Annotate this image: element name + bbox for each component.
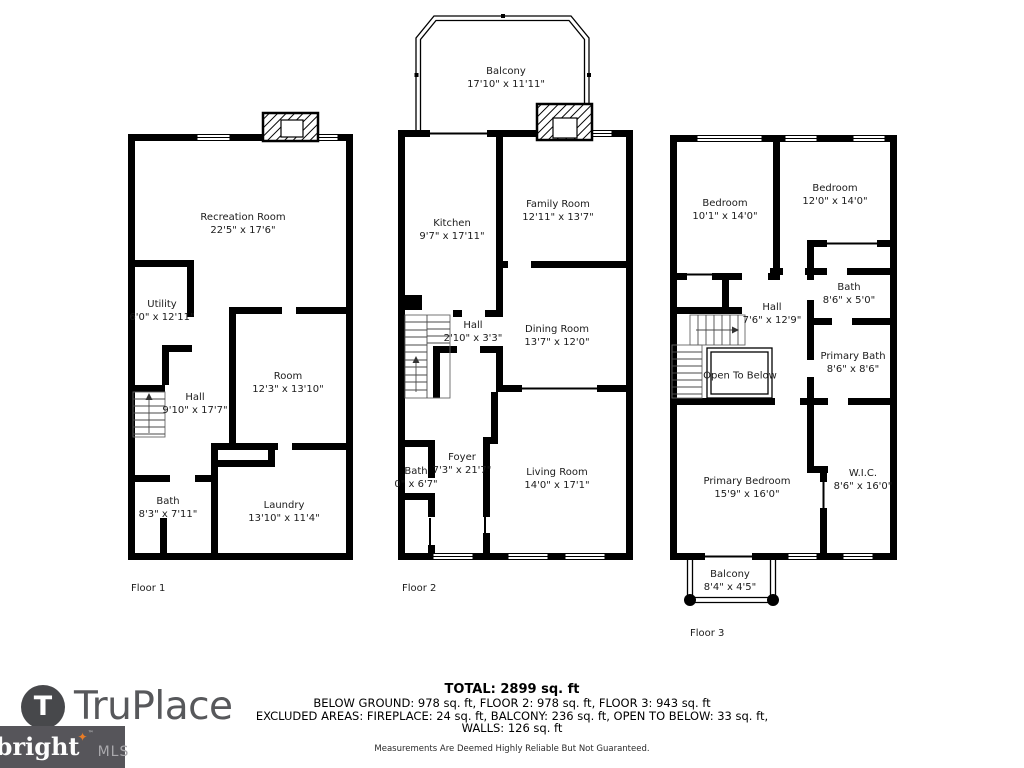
fireplace-symbol [537,104,592,140]
room-dims: 12'0" x 14'0" [802,195,867,208]
floor-2-walls [398,130,633,560]
room-name: Room [252,370,324,383]
window-symbol [785,136,817,142]
window-symbol [318,135,338,141]
room-label-hall-f3: Hall 7'6" x 12'9" [743,301,802,327]
room-name: Living Room [524,466,589,479]
floorplan-page: Recreation Room 22'5" x 17'6" Utility 6'… [0,0,1024,768]
window-symbol [853,136,885,142]
room-dims: 6'0" x 12'11" [129,311,194,324]
room-label-laundry: Laundry 13'10" x 11'4" [248,499,320,525]
room-dims: 15'9" x 16'0" [703,488,790,501]
window-symbol [197,135,230,141]
window-symbol [592,131,612,137]
room-dims: 12'11" x 13'7" [522,211,594,224]
room-name: Primary Bath [820,350,885,363]
room-name: Family Room [522,198,594,211]
room-name: Foyer [433,451,492,464]
room-dims: 8'4" x 4'5" [704,581,756,594]
room-name: Bedroom [692,197,757,210]
room-dims: 14'0" x 17'1" [524,479,589,492]
room-dims: 22'5" x 17'6" [200,224,285,237]
room-label-recreation-room: Recreation Room 22'5" x 17'6" [200,211,285,237]
window-symbol [433,554,473,560]
room-label-hall-f2: Hall 2'10" x 3'3" [444,319,503,345]
room-dims: 10'1" x 14'0" [692,210,757,223]
room-dims: 17'10" x 11'11" [467,78,545,91]
fireplace-symbol [263,113,318,141]
room-name: Utility [129,298,194,311]
room-label-bedroom-2: Bedroom 12'0" x 14'0" [802,182,867,208]
room-name: Hall [162,391,227,404]
truplace-pin-icon: T [21,685,65,729]
staircase-symbol [133,392,165,437]
room-dims: 7'3" x 21'7" [433,464,492,477]
room-name: Balcony [467,65,545,78]
room-label-living-room: Living Room 14'0" x 17'1" [524,466,589,492]
room-label-hall-f1: Hall 9'10" x 17'7" [162,391,227,417]
room-dims: 13'7" x 12'0" [524,336,589,349]
room-label-primary-bedroom: Primary Bedroom 15'9" x 16'0" [703,475,790,501]
room-dims: 0" x 6'7" [394,478,437,491]
truplace-logo: T TruPlace [21,684,233,729]
room-dims: 8'6" x 16'0" [834,480,893,493]
room-label-bath-f2: Bath 0" x 6'7" [394,465,437,491]
bright-mls-logo: bright ✦ ™ MLS [0,726,125,768]
window-symbol [565,554,605,560]
room-label-balcony-f3: Balcony 8'4" x 4'5" [704,568,756,594]
truplace-wordmark: TruPlace [74,684,233,729]
room-dims: 2'10" x 3'3" [444,332,503,345]
room-label-bath-f3: Bath 8'6" x 5'0" [823,281,875,307]
room-name: Hall [444,319,503,332]
room-label-wic: W.I.C. 8'6" x 16'0" [834,467,893,493]
room-name: Bath [394,465,437,478]
room-label-bedroom-1: Bedroom 10'1" x 14'0" [692,197,757,223]
room-name: Recreation Room [200,211,285,224]
floorplan-drawing [0,0,1024,768]
room-name: Laundry [248,499,320,512]
room-dims: 9'10" x 17'7" [162,404,227,417]
room-dims: 7'6" x 12'9" [743,314,802,327]
room-label-primary-bath: Primary Bath 8'6" x 8'6" [820,350,885,376]
room-dims: 9'7" x 17'11" [419,230,484,243]
room-label-dining-room: Dining Room 13'7" x 12'0" [524,323,589,349]
staircase-symbol [672,315,745,398]
bright-wordmark: bright [0,735,80,759]
room-dims: 8'6" x 8'6" [820,363,885,376]
room-name: Dining Room [524,323,589,336]
floor-3-label: Floor 3 [690,628,724,639]
room-name: Balcony [704,568,756,581]
room-name: Hall [743,301,802,314]
room-label-room: Room 12'3" x 13'10" [252,370,324,396]
disclaimer-text: Measurements Are Deemed Highly Reliable … [0,744,1024,754]
room-name: Bath [823,281,875,294]
room-dims: 8'6" x 5'0" [823,294,875,307]
room-name: Bedroom [802,182,867,195]
room-label-balcony-f2: Balcony 17'10" x 11'11" [467,65,545,91]
room-label-foyer: Foyer 7'3" x 21'7" [433,451,492,477]
room-name: Open To Below [703,370,777,383]
mls-wordmark: MLS [98,745,130,759]
room-name: Bath [139,495,198,508]
window-symbol [508,554,548,560]
room-label-utility: Utility 6'0" x 12'11" [129,298,194,324]
window-symbol [697,136,762,142]
room-dims: 8'3" x 7'11" [139,508,198,521]
window-symbol [788,554,817,560]
room-name: Kitchen [419,217,484,230]
star-icon: ✦ [78,731,88,743]
floor-2-label: Floor 2 [402,583,436,594]
balcony-post [767,594,779,606]
room-label-kitchen: Kitchen 9'7" x 17'11" [419,217,484,243]
window-symbol [843,554,873,560]
room-label-open-to-below: Open To Below [703,370,777,383]
room-name: W.I.C. [834,467,893,480]
balcony-post [684,594,696,606]
room-dims: 13'10" x 11'4" [248,512,320,525]
room-label-family-room: Family Room 12'11" x 13'7" [522,198,594,224]
room-label-bath-f1: Bath 8'3" x 7'11" [139,495,198,521]
floor-1-label: Floor 1 [131,583,165,594]
trademark-symbol: ™ [88,731,94,737]
room-dims: 12'3" x 13'10" [252,383,324,396]
room-name: Primary Bedroom [703,475,790,488]
